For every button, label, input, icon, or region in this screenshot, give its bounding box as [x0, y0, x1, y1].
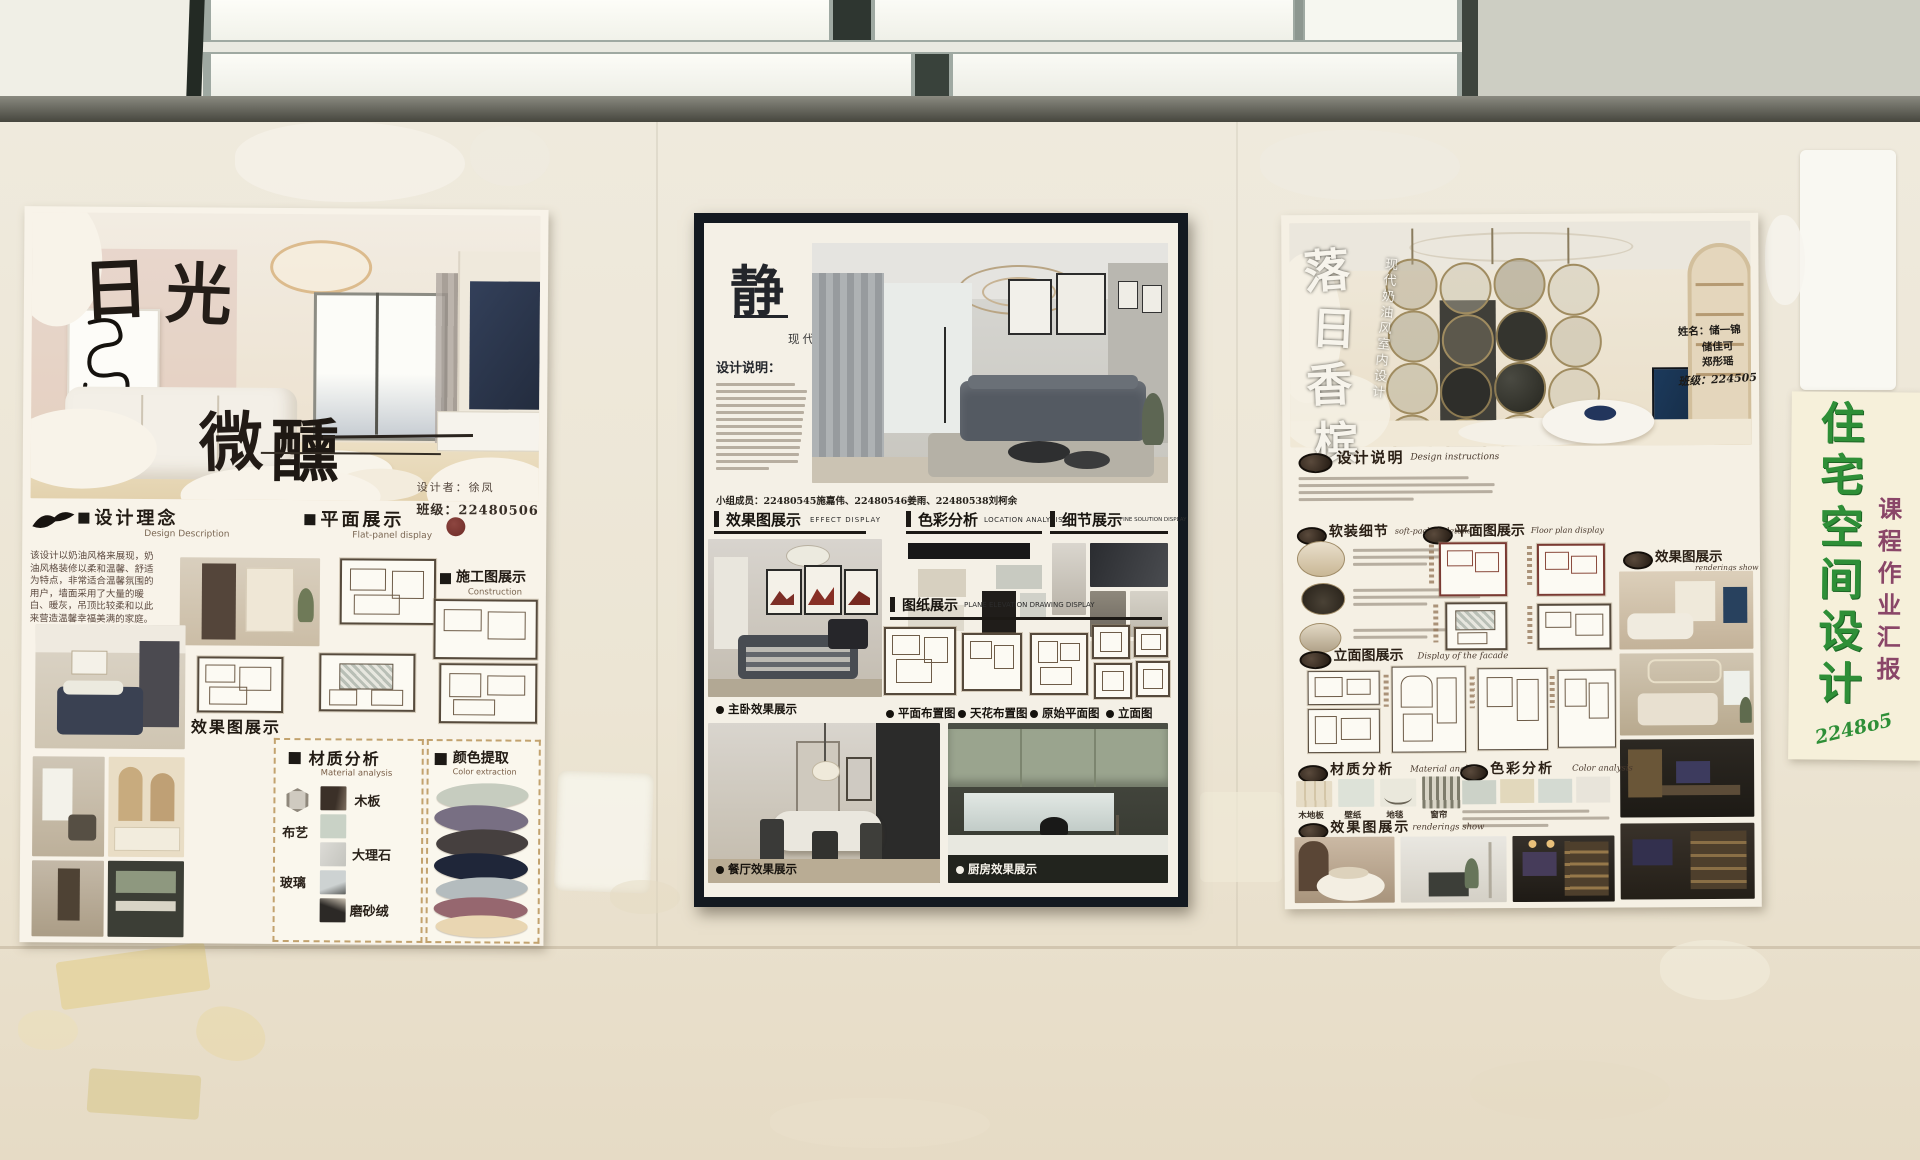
hall-photo: [31, 860, 104, 937]
drawing-header-zh: 图纸展示: [902, 595, 958, 615]
material-label: 布艺: [282, 822, 308, 841]
elevation-caption-strip: [1470, 676, 1475, 708]
elevation-thumb: [1134, 627, 1168, 657]
poster-left-title-char: 微: [198, 391, 265, 485]
partition-rod: [1567, 228, 1569, 264]
bullet-dot: [956, 866, 964, 874]
desc-header-zh: 设计说明: [1336, 447, 1404, 468]
floor-plan: [197, 656, 283, 713]
wall-stain: [235, 122, 465, 202]
mirror: [846, 757, 872, 801]
dining-label: 餐厅效果展示: [716, 861, 797, 877]
handwritten-name-line: 郑彤瑶: [1702, 353, 1734, 369]
side-table: [1064, 451, 1110, 469]
section-bar: [890, 597, 895, 612]
elevation-drawing: [1308, 709, 1380, 753]
material-label: 大理石: [352, 844, 391, 863]
desk-chair: [828, 619, 868, 649]
material-sample-sage: [320, 814, 346, 838]
upper-cabinets-sage: [948, 729, 1168, 787]
partition-circle: [1547, 264, 1599, 316]
counter: [948, 835, 1168, 855]
wardrobe-mirror: [139, 641, 180, 727]
dark-door: [202, 563, 237, 639]
plan-header-en: Flat-panel display: [352, 530, 432, 541]
elevation-thumb: [1092, 625, 1130, 659]
window-pane: [211, 54, 911, 96]
material-header-zh: 材质分析: [1330, 759, 1394, 779]
floor-plan: [1030, 633, 1088, 695]
plan-header-zh: 平面展示: [320, 505, 404, 532]
shelf-warm: [1628, 749, 1662, 797]
effect2-header-en: renderings show: [1412, 822, 1484, 832]
material-swatch-carpet: [1380, 779, 1416, 807]
designer-line: 设计者：徐凤: [417, 479, 495, 496]
color-swatch: [1500, 779, 1534, 803]
kitchen-photo: 厨房效果展示: [948, 723, 1168, 883]
downlight: [1546, 840, 1554, 848]
material-sample-glass: [320, 870, 346, 894]
class-line: 班级：22480506: [416, 499, 539, 519]
color-header-en: Color extraction: [453, 767, 517, 776]
effect-header-en: EFFECT DISPLAY: [810, 516, 881, 524]
partition-circle: [1493, 258, 1545, 310]
concept-paragraph: 该设计以奶油风格来展现，奶油风格装修以柔和温馨、舒适为特点，非常适合温馨氛围的用…: [30, 550, 163, 626]
material-sample-marble: [320, 842, 346, 866]
bedroom-photo: [35, 624, 186, 749]
material-label: 玻璃: [280, 872, 306, 891]
pendant-shade: [812, 761, 840, 781]
header-underline: [890, 617, 1162, 620]
floor-plan: [962, 633, 1022, 691]
bird-icon: [30, 506, 76, 534]
floor-header-en: Floor plan display: [1531, 526, 1604, 535]
master-bedroom-label: 主卧效果展示: [716, 701, 797, 717]
tape-patch-yellow: [87, 1068, 202, 1120]
navy-bowl: [1584, 406, 1616, 421]
island-dark: [1429, 872, 1469, 896]
upper-wall-right: [1478, 0, 1920, 98]
floor-header-zh: 平面图展示: [1455, 520, 1525, 540]
plan-caption-strip: [1527, 546, 1532, 588]
bullet-dot: [1106, 710, 1114, 718]
screen: [1632, 839, 1672, 865]
poster-middle-hero-photo: [812, 243, 1168, 483]
detail-header-zh: 细节展示: [1062, 509, 1122, 530]
course-sign-title: 住宅空间设计: [1802, 399, 1870, 752]
partition-circle: [1439, 262, 1491, 314]
effect2-header-zh: 效果图展示: [1330, 817, 1410, 837]
material-sample-velvet: [320, 898, 346, 922]
red-seal-dot: [446, 517, 465, 536]
label-text: 平面布置图: [898, 706, 956, 720]
color-swatch: [996, 565, 1042, 589]
elevation-drawing: [1478, 668, 1548, 750]
ceiling-lamp: [786, 545, 830, 567]
bed-light: [1638, 693, 1718, 725]
ledge: [0, 96, 1920, 122]
art-frame: [1056, 273, 1106, 335]
material-swatch-wallpaper: [1338, 779, 1374, 807]
partition-circle: [1550, 316, 1602, 368]
floor: [708, 679, 882, 697]
seal-oval-icon: [1299, 651, 1331, 669]
window-strip: [964, 793, 1114, 831]
pendant-cord: [824, 723, 826, 763]
poster-middle: 静谧 现代简约方案设计 设计说明： 小组成员：224805: [694, 213, 1188, 907]
partition-circle: [1386, 362, 1438, 414]
team-line: 小组成员：22480545施嘉伟、22480546姜雨、22480538刘柯余: [716, 493, 1017, 507]
small-frames: [71, 651, 107, 675]
window-pane: [211, 0, 829, 40]
window-pane: [953, 54, 1457, 96]
label-text: 天花布置图: [970, 706, 1028, 720]
plan-caption-strip: [1433, 604, 1438, 642]
construction-header-en: Construction: [468, 587, 522, 597]
shelf-line: [1696, 283, 1744, 286]
window-mullion-dark: [915, 54, 949, 96]
art-frame-small: [1142, 285, 1162, 313]
wall-stain: [1660, 940, 1770, 1000]
floor-plan: [1537, 604, 1611, 650]
elevation-caption-strip: [1384, 675, 1389, 707]
tape-patch: [1200, 792, 1282, 882]
partition-circle-dark: [1440, 366, 1492, 418]
seal-oval-icon: [1298, 453, 1332, 473]
section-marker: [304, 514, 315, 525]
wall-stain: [770, 1098, 990, 1148]
facade-header-zh: 立面图展示: [1333, 645, 1403, 665]
cabinet-sage: [116, 871, 176, 893]
header-underline: [714, 531, 866, 534]
material-label: 木地板: [1298, 809, 1324, 821]
partition-circle-dark: [1496, 310, 1548, 362]
material-swatch-woodfloor: [1296, 781, 1332, 807]
blanket-stripes: [746, 647, 850, 671]
plan-caption-strip: [1527, 606, 1532, 644]
shelf-line: [1696, 313, 1744, 316]
hallway-photo: [180, 557, 321, 646]
sofa-cushions: [968, 375, 1138, 389]
floor-plan: [1537, 544, 1605, 596]
carpet-curve: [1384, 789, 1412, 805]
seal-oval-icon: [1623, 551, 1653, 569]
poster-left-title-char: 日: [80, 235, 150, 334]
window-mullion-dark: [833, 0, 871, 40]
plan-label: 原始平面图: [1030, 705, 1100, 721]
red-art-frame: [804, 565, 842, 615]
tape-patch-yellow: [18, 1010, 78, 1050]
material-label: 窗帘: [1430, 808, 1447, 820]
color-swatch: [1576, 777, 1610, 803]
cabinet-line: [1094, 729, 1096, 787]
art-frame-small: [1118, 281, 1138, 309]
counter-light: [116, 901, 176, 911]
tv-screen: [469, 281, 540, 409]
desc-label: 设计说明：: [716, 357, 781, 376]
bullet-dot: [1030, 710, 1038, 718]
elevation-thumb: [1136, 661, 1170, 697]
ceiling-ring: [1648, 659, 1722, 683]
photo-of-exhibition-wall: 日 光 微 醺 设计者：徐凤 班级：22480506 设计理念 Design D…: [0, 0, 1920, 1160]
elevation-drawing: [1392, 666, 1466, 752]
dark-chair: [68, 815, 96, 841]
partition-circle-dark: [1494, 362, 1546, 414]
floor-plan: [340, 558, 436, 625]
color-analysis-black-bar: [908, 543, 1030, 559]
title-underline: [734, 315, 788, 318]
wall-seam-vertical: [656, 122, 658, 946]
floor-plan: [439, 663, 537, 724]
window-pane: [875, 0, 1293, 40]
section-marker: [78, 513, 89, 524]
detail-photo: [1090, 543, 1168, 587]
wall-stain: [470, 126, 550, 186]
floor-plan: [433, 599, 537, 660]
hall-line: [1488, 842, 1491, 898]
desc-header-en: Design instructions: [1410, 452, 1499, 462]
desc-text-lines: [1299, 472, 1497, 513]
window-pane: [1305, 0, 1457, 40]
window-frame-edge-right: [1462, 0, 1478, 96]
tape-patch-white: [1800, 150, 1896, 390]
concept-header-en: Design Description: [144, 529, 229, 540]
section-marker: [435, 753, 447, 765]
facade-header-en: Display of the facade: [1417, 651, 1508, 661]
label-text: 原始平面图: [1042, 706, 1100, 720]
floor-plan: [1439, 542, 1507, 596]
section-bar: [906, 511, 911, 527]
living-corner-photo: [32, 756, 105, 857]
elevation-caption-strip: [1550, 676, 1555, 708]
effect-header-zh: 效果图展示: [191, 713, 281, 738]
color-swatch: [918, 569, 966, 597]
soft-detail-oval-sofa: [1297, 541, 1345, 577]
color-swatch: [1538, 779, 1572, 803]
art-frame: [1008, 279, 1052, 335]
lit-shelves: [1690, 831, 1746, 889]
arch-bookshelf-photo: [108, 757, 185, 858]
arch-niche: [150, 773, 174, 821]
section-marker: [289, 752, 301, 764]
material-label: 木板: [354, 790, 380, 809]
poster-right: 落 日 香 槟 现代奶油风室内设计 姓名：储一锦 储佳可 郑彤瑶 班级：2245…: [1281, 213, 1762, 909]
wall-stain: [1260, 130, 1460, 200]
plan-label: 天花布置图: [958, 705, 1028, 721]
bullet-dot: [716, 866, 724, 874]
plant: [1465, 858, 1479, 888]
tape-patch: [554, 770, 654, 893]
material-header-zh: 材质分析: [309, 745, 381, 770]
dark-media-photo: [1512, 836, 1614, 903]
label-text: 主卧效果展示: [728, 702, 797, 716]
plan-label: 立面图: [1106, 705, 1153, 721]
media-render-photo: [1620, 823, 1754, 900]
floor-plan: [884, 627, 956, 695]
poster-left-title-char: 光: [164, 240, 234, 339]
tv-dark: [1723, 587, 1747, 623]
dark-sofa: [960, 381, 1146, 441]
tv-console: [437, 411, 541, 452]
elevation-drawing: [1308, 671, 1380, 705]
material-swatch-curtain: [1422, 776, 1460, 808]
label-text: 立面图: [1118, 706, 1153, 720]
tape-patch-white: [1765, 215, 1805, 305]
bullet-dot: [958, 710, 966, 718]
dining-photo: 餐厅效果展示: [708, 723, 940, 883]
material-label: 磨砂绒: [350, 900, 389, 919]
detail-header-en: FINE SOLUTION DISPLAY: [1120, 517, 1186, 523]
color-header-zh: 颜色提取: [453, 747, 509, 767]
poster-left-title-char: 醺: [271, 396, 340, 495]
section-bar: [714, 511, 719, 527]
partition-rod: [1491, 228, 1493, 264]
monitor-glow: [1676, 761, 1710, 783]
plant: [1740, 697, 1752, 723]
partition-circle: [1388, 310, 1440, 362]
plant: [1142, 393, 1164, 445]
plan-label: 平面布置图: [886, 705, 956, 721]
seal-oval-icon: [1460, 764, 1488, 781]
kitchen-label: 厨房效果展示: [956, 861, 1037, 877]
bedroom-render-photo: [1619, 653, 1753, 736]
section-marker: [440, 573, 451, 584]
curtains: [812, 273, 884, 459]
elevation-thumb: [1094, 663, 1132, 699]
floor-plan: [1445, 602, 1507, 650]
cream-cabinet: [246, 568, 294, 632]
coffee-table-dark: [1008, 441, 1070, 463]
plan-caption-strip: [1429, 544, 1434, 586]
color-header-zh: 色彩分析: [918, 509, 978, 530]
bullet-dot: [886, 710, 894, 718]
lit-shelf-grid: [1564, 842, 1608, 896]
header-underline: [906, 531, 1042, 534]
arch-niche: [118, 767, 142, 821]
handwritten-name-line: 姓名：储一锦: [1678, 322, 1742, 340]
effect-header-zh: 效果图展示: [726, 509, 801, 530]
color-header-zh: 色彩分析: [1490, 758, 1554, 778]
floor-plan: [319, 653, 415, 712]
plant: [298, 588, 314, 622]
floor-lamp: [944, 327, 946, 423]
cabinet-base: [114, 827, 180, 851]
window-sill: [203, 42, 1465, 52]
kitchen-dark-photo: [107, 861, 184, 938]
soft-detail-oval-shelf: [1301, 583, 1345, 615]
master-bedroom-photo: [708, 539, 882, 697]
window-glow: [884, 283, 972, 433]
handwritten-name-line: 储佳可: [1702, 338, 1734, 354]
soft-header-zh: 软装细节: [1329, 521, 1389, 541]
screen-glow: [1523, 852, 1557, 876]
color-swatch: [1462, 780, 1496, 804]
round-bed-photo: [1294, 837, 1394, 904]
faucet: [1116, 815, 1119, 835]
tape-patch: [610, 880, 680, 914]
color-header-en: Color analysis: [1572, 763, 1633, 773]
cabinet-line: [1020, 729, 1022, 787]
label-text: 厨房效果展示: [968, 862, 1037, 876]
material-sample-wood: [320, 786, 346, 810]
wall-seam-horizontal: [0, 946, 1920, 949]
upper-wall-left: [0, 0, 203, 98]
downlight: [1528, 840, 1536, 848]
red-art-frame: [844, 569, 878, 615]
window-frame: [203, 0, 1465, 96]
color-swatch: [982, 591, 1016, 635]
elevation-drawing: [1558, 670, 1616, 748]
chandelier: [270, 240, 372, 295]
label-text: 餐厅效果展示: [728, 862, 797, 876]
concept-header-zh: 设计理念: [94, 504, 178, 531]
bright-window: [42, 768, 72, 820]
section-bar: [1050, 511, 1055, 527]
bright-kitchen-photo: [1400, 836, 1506, 903]
living-render-photo: [1619, 571, 1753, 650]
pale-sofa: [1627, 613, 1693, 639]
drawing-header-en: PLANE ELEVATION DRAWING DISPLAY: [964, 601, 1095, 609]
course-sign: 住宅空间设计 课程作业汇报 2248o5: [1788, 391, 1920, 760]
material-header-en: Material analysis: [321, 768, 393, 779]
window-mullion: [1295, 0, 1303, 40]
kettle: [1040, 817, 1068, 835]
study-render-photo: [1620, 739, 1754, 818]
red-art-frame: [766, 569, 802, 615]
bullet-dot: [716, 706, 724, 714]
color-analysis-text: [1462, 806, 1610, 832]
wall-stain: [1470, 1060, 1670, 1120]
door-dark: [58, 868, 80, 920]
poster-left: 日 光 微 醺 设计者：徐凤 班级：22480506 设计理念 Design D…: [19, 206, 548, 946]
partition-circle: [1442, 314, 1494, 366]
poster-right-title-char: 香: [1305, 348, 1354, 416]
pillows: [63, 680, 123, 694]
header-underline: [1050, 531, 1168, 534]
construction-header-zh: 施工图展示: [456, 566, 526, 586]
